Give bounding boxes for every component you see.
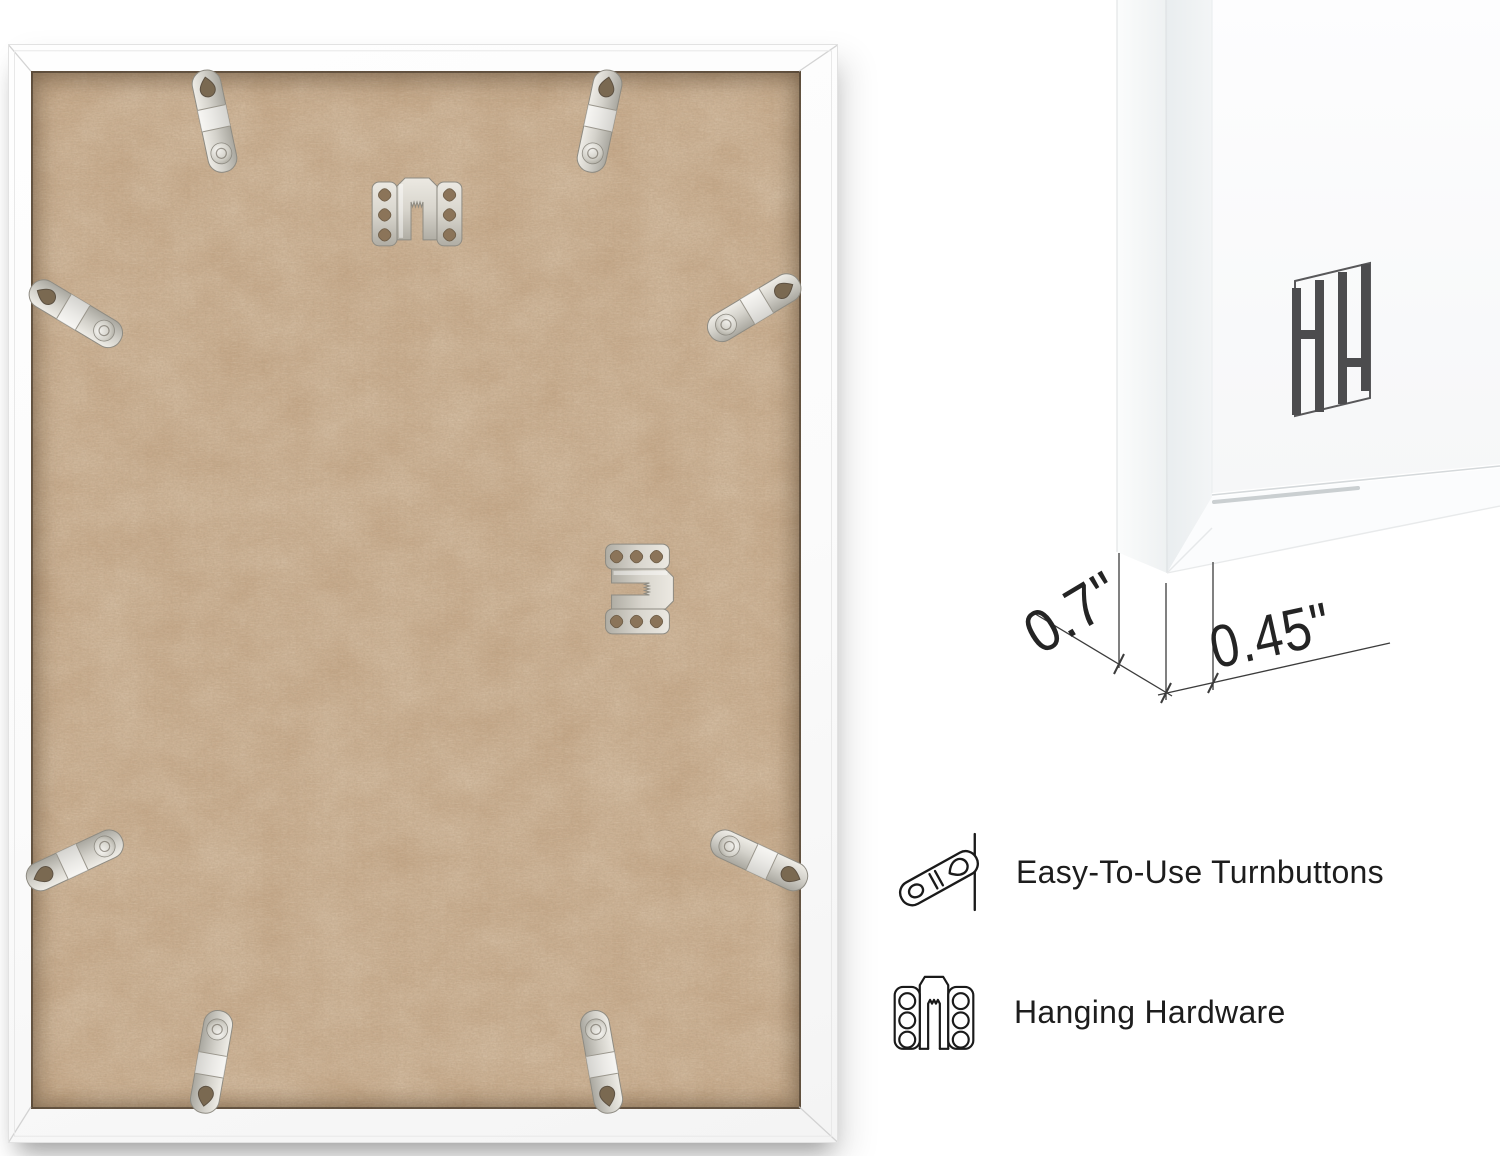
turnbutton-right-lower (706, 825, 812, 895)
turnbutton-bottom-right (578, 1008, 625, 1115)
turnbutton-top-right (575, 67, 625, 174)
sawtooth-hanger-side (606, 544, 674, 634)
product-image: 0.7" 0.45" Easy-To-Use Turnbuttons (0, 0, 1500, 1156)
turnbutton-left-upper (24, 275, 128, 353)
hanging-hardware-outline-icon (888, 968, 980, 1056)
frame-back-photo (8, 44, 838, 1143)
mat-board (1212, 0, 1500, 493)
turnbutton-left-lower (22, 825, 128, 895)
frame-corner-detail-photo: 0.7" 0.45" (990, 0, 1500, 745)
dimension-face-label: 0.45" (1204, 590, 1338, 682)
turnbutton-bottom-left (188, 1008, 235, 1115)
turnbutton-right-upper (702, 269, 806, 347)
turnbutton-top-left (190, 67, 240, 174)
dimension-depth-label: 0.7" (1012, 558, 1132, 667)
hardware-overlay (9, 45, 837, 1142)
turnbutton-outline-icon (888, 832, 982, 912)
feature-label-turnbuttons: Easy-To-Use Turnbuttons (1016, 854, 1384, 891)
feature-label-hanging-hardware: Hanging Hardware (1014, 994, 1286, 1031)
feature-turnbuttons: Easy-To-Use Turnbuttons (888, 831, 1384, 913)
feature-hanging-hardware: Hanging Hardware (888, 966, 1286, 1058)
sawtooth-hanger-top (372, 178, 462, 246)
frame-side-face (1117, 0, 1167, 573)
frame-front-face (1166, 0, 1212, 573)
